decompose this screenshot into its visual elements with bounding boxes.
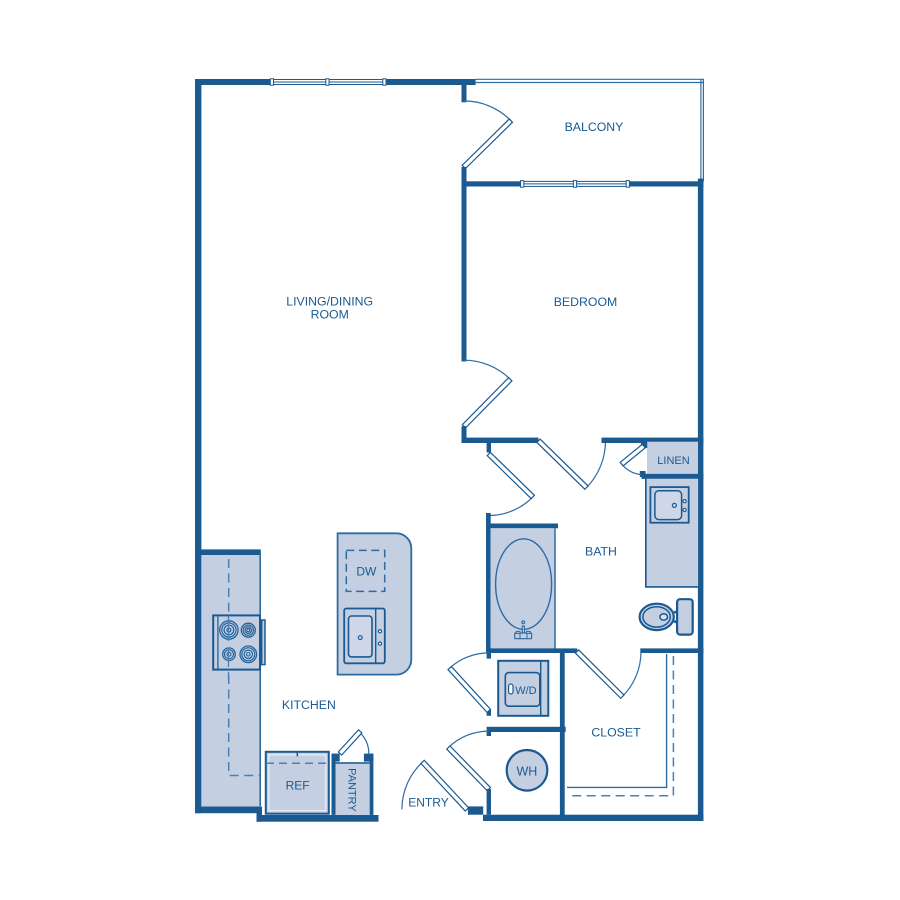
- svg-text:KITCHEN: KITCHEN: [282, 698, 336, 712]
- svg-text:REF: REF: [286, 779, 310, 793]
- svg-text:ENTRY: ENTRY: [408, 795, 448, 809]
- svg-text:BEDROOM: BEDROOM: [554, 295, 618, 309]
- svg-text:CLOSET: CLOSET: [591, 726, 641, 740]
- svg-text:PANTRY: PANTRY: [345, 768, 357, 812]
- svg-text:BALCONY: BALCONY: [565, 120, 624, 134]
- svg-text:LIVING/DINING: LIVING/DINING: [286, 294, 373, 308]
- svg-text:W/D: W/D: [515, 685, 536, 697]
- svg-text:LINEN: LINEN: [657, 455, 689, 467]
- svg-text:ROOM: ROOM: [311, 307, 349, 321]
- svg-text:BATH: BATH: [585, 544, 617, 558]
- svg-text:DW: DW: [356, 564, 377, 578]
- svg-text:WH: WH: [516, 764, 537, 778]
